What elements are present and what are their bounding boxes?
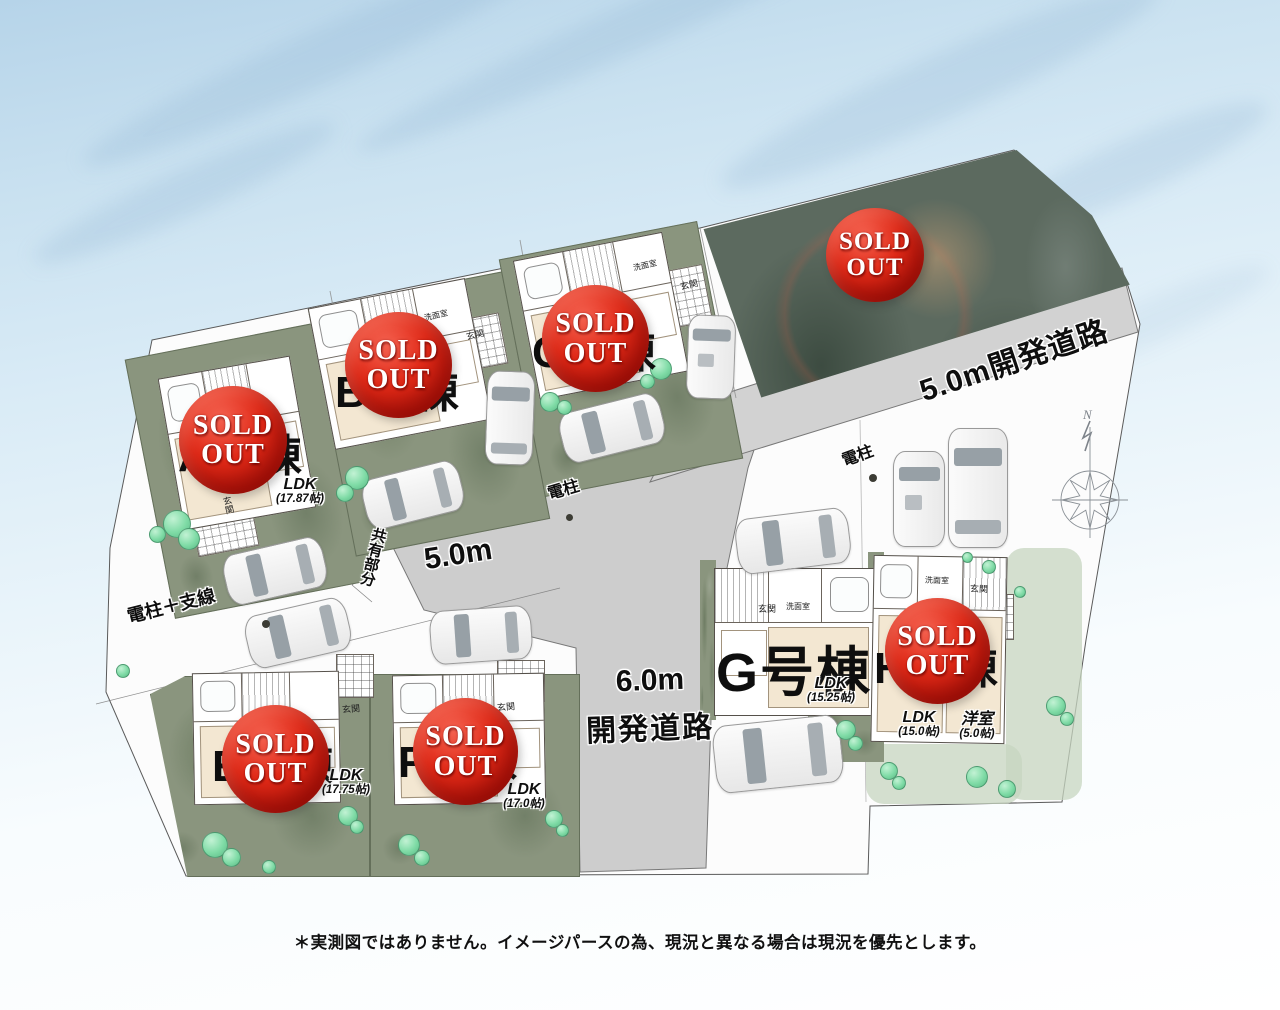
tree: [892, 776, 906, 790]
sold-out-badge-lot-e: SOLDOUT: [222, 705, 329, 813]
tree: [336, 484, 354, 502]
tree: [262, 860, 276, 874]
sold-out-badge-lot-d: SOLDOUT: [826, 208, 924, 302]
sold-out-badge-lot-h: SOLDOUT: [885, 598, 990, 704]
dev-road-6m-label: 開発道路: [579, 702, 720, 751]
tree: [998, 780, 1016, 798]
bathtub-icon: [522, 261, 564, 301]
dev-road-6m-width-label: 6.0m: [597, 662, 702, 700]
bathroom-cell: [193, 673, 242, 721]
lot-g-entrance-label: 玄関: [758, 602, 776, 615]
tree: [414, 850, 430, 866]
site-plan-illustration: A号棟 B号棟 C号棟 E号棟 F号棟 G号棟 H号棟 LDK(17.87帖) …: [0, 0, 1280, 1010]
tree: [1014, 586, 1026, 598]
tree: [178, 528, 200, 550]
sold-out-badge-lot-f: SOLDOUT: [413, 698, 518, 805]
compass-rose: N: [1050, 405, 1130, 540]
tree: [556, 824, 569, 837]
lot-g-washroom-label: 洗面室: [786, 601, 810, 612]
sold-out-badge-lot-c: SOLDOUT: [542, 285, 649, 392]
car: [428, 605, 534, 666]
disclaimer-note: ＊実測図ではありません。イメージパースの為、現況と異なる場合は現況を優先とします…: [30, 929, 1250, 953]
entrance-tiles-e: [336, 654, 374, 698]
tree: [557, 400, 572, 415]
house-g-rooms: [715, 569, 875, 623]
lot-h-washroom-label: 洗面室: [925, 575, 949, 587]
car: [711, 713, 845, 794]
utility-pole-dot: [869, 474, 877, 482]
lot-a-ldk-label: LDK(17.87帖): [268, 477, 332, 506]
tree: [982, 560, 996, 574]
tree: [149, 526, 166, 543]
lot-h-western-room-label: 洋室(5.0帖): [948, 712, 1006, 741]
bathtub-icon: [200, 681, 236, 713]
tree: [962, 552, 973, 563]
van: [893, 451, 945, 547]
bathroom-cell: [822, 569, 875, 622]
bathtub-icon: [830, 577, 869, 612]
tree: [1060, 712, 1074, 726]
lot-g-ldk-label: LDK(15.25帖): [796, 676, 866, 705]
lot-h-entrance-label: 玄関: [970, 582, 988, 596]
sold-out-badge-lot-b: SOLDOUT: [345, 312, 452, 418]
washroom-cell: [769, 569, 823, 622]
tree: [350, 820, 364, 834]
utility-pole-dot: [566, 514, 573, 521]
tree: [848, 736, 863, 751]
lot-e-entrance-label: 玄関: [342, 701, 361, 715]
bathtub-icon: [880, 564, 913, 599]
bathroom-cell: [874, 556, 919, 609]
tree: [966, 766, 988, 788]
car: [948, 428, 1008, 548]
van: [686, 314, 737, 400]
tree: [116, 664, 130, 678]
car: [484, 370, 535, 466]
utility-pole-dot: [262, 620, 270, 628]
tree: [222, 848, 241, 867]
sold-out-badge-lot-a: SOLDOUT: [179, 386, 287, 494]
compass-north-label: N: [1082, 407, 1093, 422]
lot-h-ldk-label: LDK(15.0帖): [890, 710, 948, 739]
